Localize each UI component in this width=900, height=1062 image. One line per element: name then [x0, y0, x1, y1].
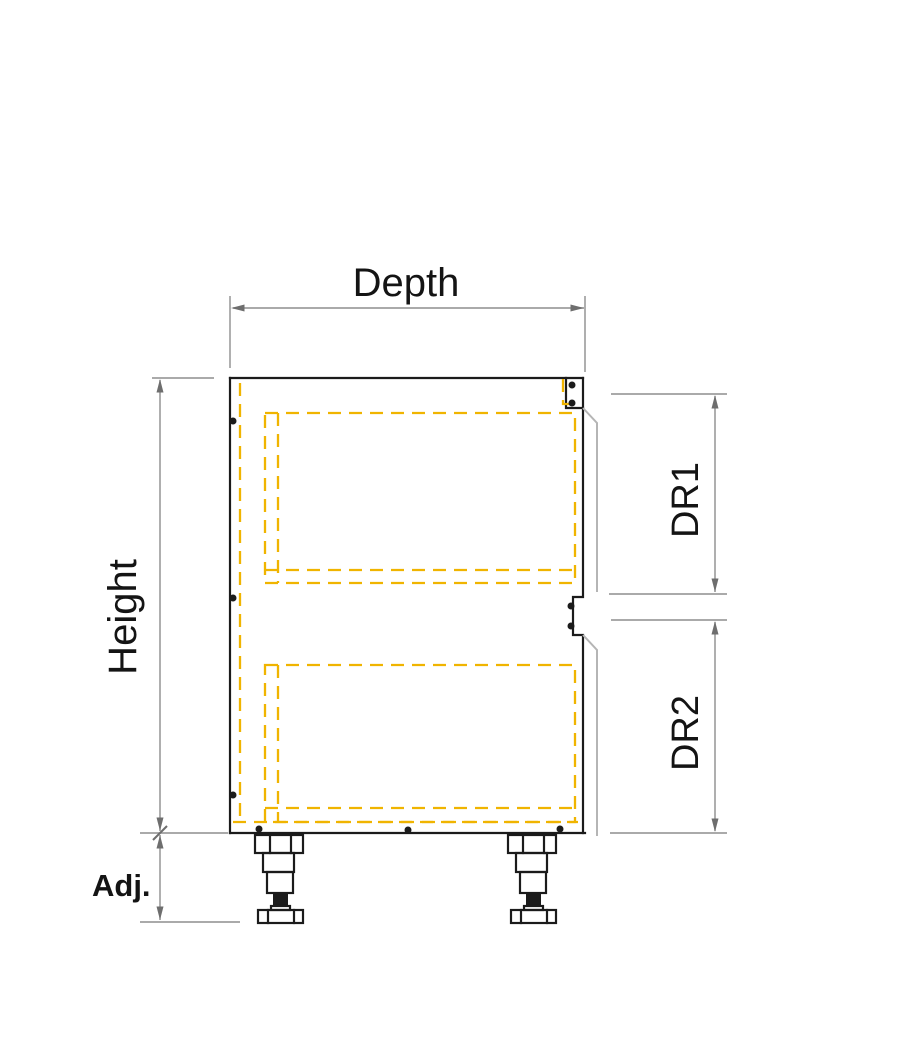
height-dimension: Height — [101, 378, 228, 840]
fixing-dots — [230, 382, 576, 834]
arrowhead-up — [712, 621, 719, 635]
arrowhead-up — [157, 379, 164, 393]
screw-dot — [568, 623, 575, 630]
screw-dot — [230, 595, 237, 602]
height-label: Height — [101, 559, 145, 675]
drawer1-hidden-outline — [265, 413, 575, 583]
adjustable-leg-left — [255, 835, 303, 923]
screw-dot — [569, 382, 576, 389]
hidden-lines — [233, 379, 578, 822]
arrowhead-right — [571, 305, 585, 312]
arrowhead-down — [157, 907, 164, 921]
dr2-dimension: DR2 — [610, 620, 727, 833]
drawer2-hidden-outline — [265, 665, 575, 822]
adjustable-dimension: Adj. — [92, 835, 240, 922]
adjustable-leg-right — [508, 835, 556, 923]
screw-dot — [256, 826, 263, 833]
arrowhead-down — [157, 818, 164, 832]
dr1-dimension: DR1 — [609, 394, 727, 594]
arrowhead-up — [712, 395, 719, 409]
dr2-label: DR2 — [665, 695, 707, 771]
arrowhead-down — [712, 819, 719, 833]
arrowhead-up — [157, 835, 164, 849]
cabinet-technical-drawing: Depth Height Adj. DR1 DR2 — [0, 0, 900, 1062]
cabinet-diagram-canvas: Depth Height Adj. DR1 DR2 — [0, 0, 900, 1062]
screw-dot — [230, 792, 237, 799]
adj-label: Adj. — [92, 868, 151, 903]
drawer2-front-edge — [583, 635, 597, 836]
drawer1-front-edge — [583, 408, 597, 592]
screw-dot — [557, 826, 564, 833]
cabinet-carcass — [230, 378, 585, 833]
arrowhead-left — [231, 305, 245, 312]
depth-dimension: Depth — [230, 261, 585, 372]
screw-dot — [569, 400, 576, 407]
depth-label: Depth — [353, 261, 460, 305]
screw-dot — [405, 827, 412, 834]
arrowhead-down — [712, 579, 719, 593]
screw-dot — [230, 418, 237, 425]
drawer-front-edges — [583, 408, 597, 836]
dr1-label: DR1 — [665, 462, 707, 538]
screw-dot — [568, 603, 575, 610]
